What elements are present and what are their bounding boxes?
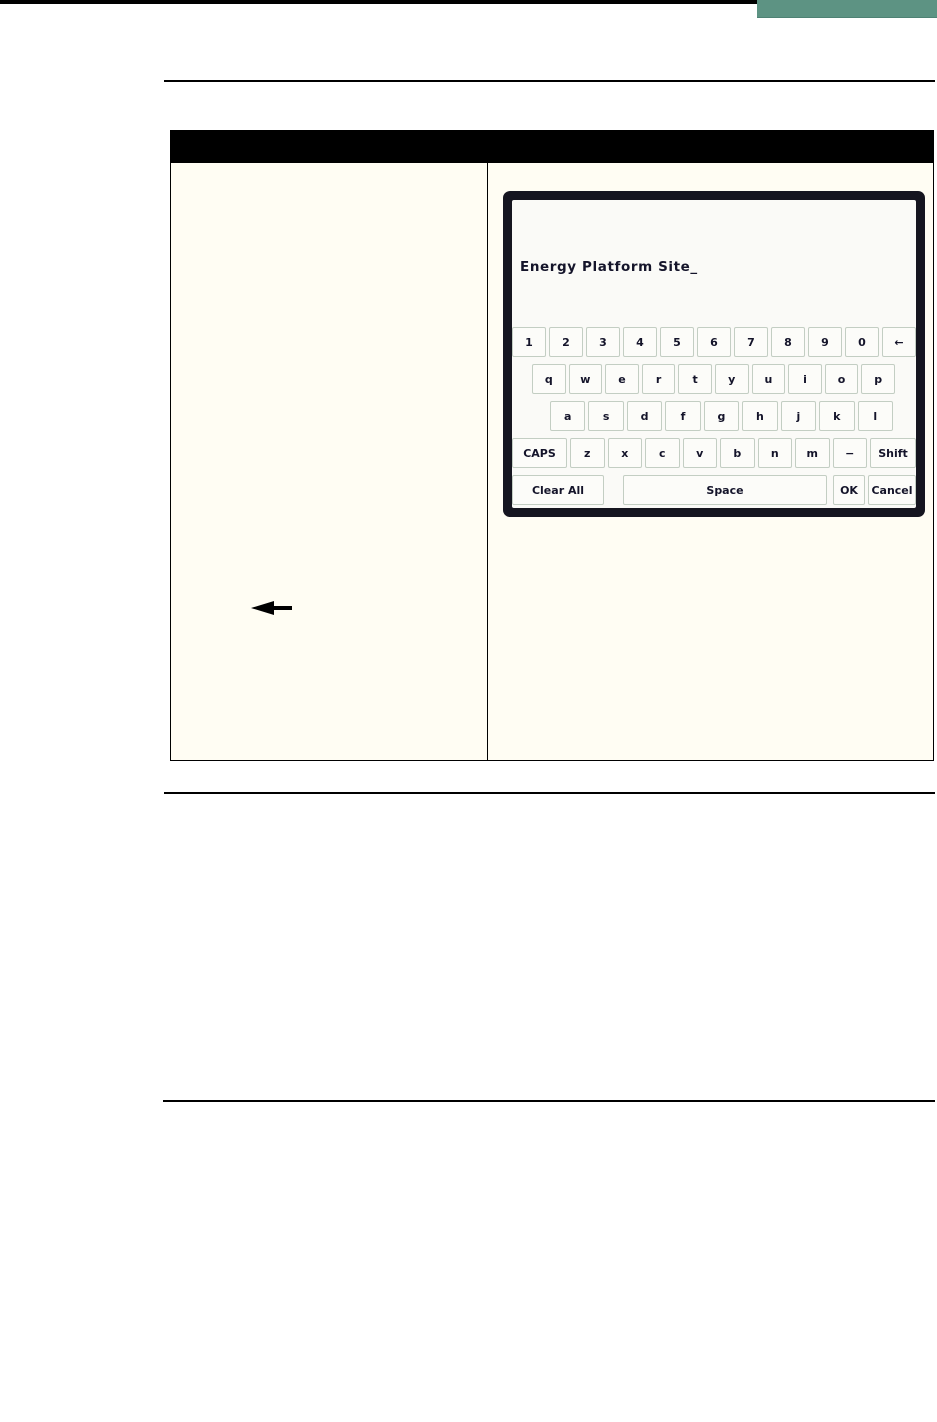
key-t[interactable]: t: [678, 364, 712, 394]
header-accent-block: [757, 0, 937, 18]
keyboard-row-3: asdfghjkl: [550, 401, 893, 431]
key-o[interactable]: o: [825, 364, 859, 394]
key-q[interactable]: q: [532, 364, 566, 394]
key-backspace[interactable]: ←: [882, 327, 916, 357]
key-u[interactable]: u: [752, 364, 786, 394]
procedure-table: Energy Platform Site_ 1234567890←qwertyu…: [170, 130, 934, 761]
table-cell-right: Energy Platform Site_ 1234567890←qwertyu…: [488, 163, 933, 760]
key-7[interactable]: 7: [734, 327, 768, 357]
key-l[interactable]: l: [858, 401, 893, 431]
keyboard-input-text: Energy Platform Site_: [520, 258, 916, 276]
table-body: Energy Platform Site_ 1234567890←qwertyu…: [170, 163, 934, 761]
key-e[interactable]: e: [605, 364, 639, 394]
key-d[interactable]: d: [627, 401, 662, 431]
table-cell-left: [171, 163, 488, 760]
key-n[interactable]: n: [758, 438, 793, 468]
key-r[interactable]: r: [642, 364, 676, 394]
keyboard-row-2: qwertyuiop: [532, 364, 895, 394]
key-8[interactable]: 8: [771, 327, 805, 357]
key-0[interactable]: 0: [845, 327, 879, 357]
key-cancel[interactable]: Cancel: [868, 475, 916, 505]
key-4[interactable]: 4: [623, 327, 657, 357]
left-arrow-icon: [251, 600, 293, 616]
keyboard-dialog-screen: Energy Platform Site_ 1234567890←qwertyu…: [512, 200, 916, 508]
key-minus[interactable]: −: [833, 438, 868, 468]
key-f[interactable]: f: [665, 401, 700, 431]
key-caps[interactable]: CAPS: [512, 438, 567, 468]
key-w[interactable]: w: [569, 364, 603, 394]
bottom-divider-rule: [163, 1100, 935, 1102]
key-s[interactable]: s: [588, 401, 623, 431]
key-x[interactable]: x: [608, 438, 643, 468]
key-1[interactable]: 1: [512, 327, 546, 357]
onscreen-keyboard-dialog: Energy Platform Site_ 1234567890←qwertyu…: [503, 191, 925, 517]
key-6[interactable]: 6: [697, 327, 731, 357]
keyboard-row-4: CAPSzxcvbnm−Shift: [512, 438, 916, 468]
key-9[interactable]: 9: [808, 327, 842, 357]
key-j[interactable]: j: [781, 401, 816, 431]
top-divider-rule: [164, 80, 935, 82]
key-k[interactable]: k: [819, 401, 854, 431]
key-shift[interactable]: Shift: [870, 438, 916, 468]
key-3[interactable]: 3: [586, 327, 620, 357]
key-m[interactable]: m: [795, 438, 830, 468]
middle-divider-rule: [164, 792, 935, 794]
keyboard-row-1: 1234567890←: [512, 327, 916, 357]
key-v[interactable]: v: [683, 438, 718, 468]
key-z[interactable]: z: [570, 438, 605, 468]
onscreen-keyboard: 1234567890←qwertyuiopasdfghjklCAPSzxcvbn…: [512, 327, 916, 505]
key-y[interactable]: y: [715, 364, 749, 394]
table-header-bar: [170, 130, 934, 163]
key-ok[interactable]: OK: [833, 475, 865, 505]
key-5[interactable]: 5: [660, 327, 694, 357]
key-c[interactable]: c: [645, 438, 680, 468]
key-i[interactable]: i: [788, 364, 822, 394]
key-a[interactable]: a: [550, 401, 585, 431]
key-clear-all[interactable]: Clear All: [512, 475, 604, 505]
key-b[interactable]: b: [720, 438, 755, 468]
key-h[interactable]: h: [742, 401, 777, 431]
key-g[interactable]: g: [704, 401, 739, 431]
key-p[interactable]: p: [861, 364, 895, 394]
key-2[interactable]: 2: [549, 327, 583, 357]
key-space[interactable]: Space: [623, 475, 827, 505]
keyboard-row-5: Clear AllSpaceOKCancel: [512, 475, 916, 505]
